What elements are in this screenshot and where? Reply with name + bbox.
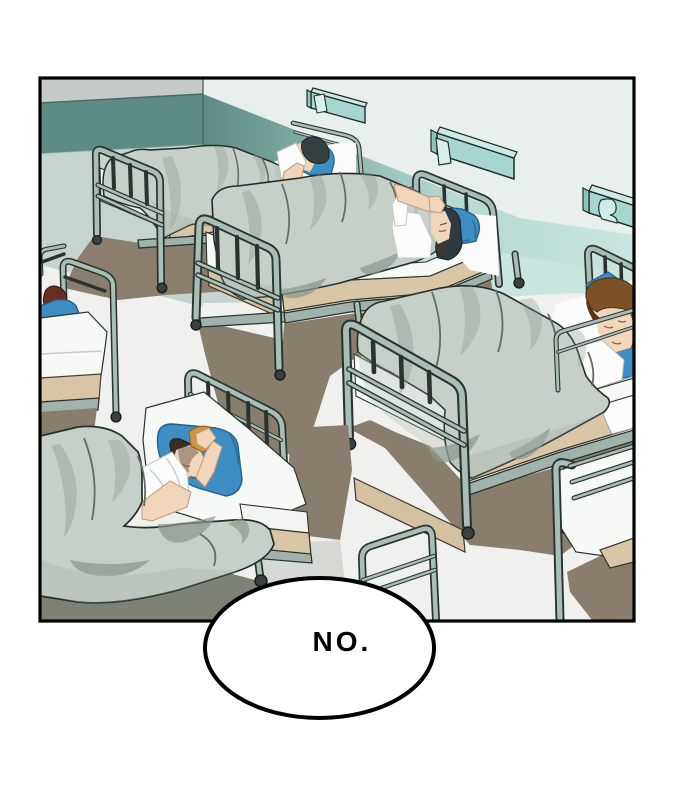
svg-text:NO.: NO. bbox=[313, 626, 372, 657]
